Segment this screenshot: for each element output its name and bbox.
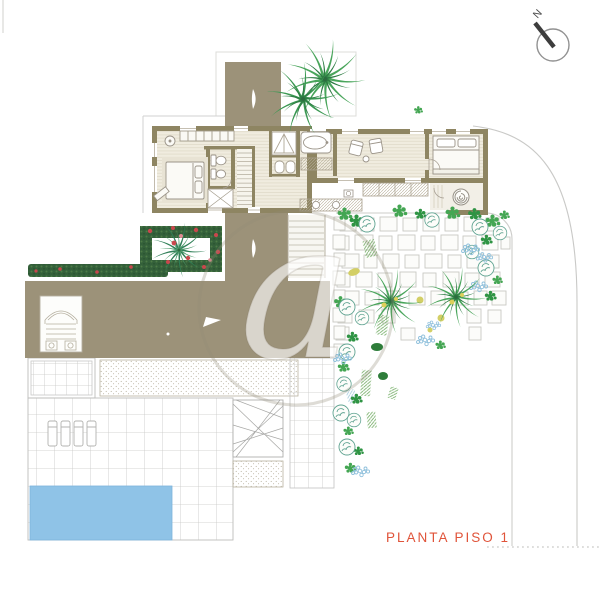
compass-needle bbox=[535, 23, 554, 47]
gravel-square bbox=[233, 461, 283, 487]
north-compass: N bbox=[531, 7, 569, 61]
roof-stair-inset bbox=[40, 296, 82, 352]
spiral-shower bbox=[453, 189, 469, 205]
shower-room bbox=[272, 132, 296, 173]
closet bbox=[208, 189, 233, 208]
swimming-pool bbox=[30, 486, 172, 540]
compass-north-label: N bbox=[531, 7, 545, 21]
watermark-letter: a bbox=[239, 181, 352, 402]
upper-terrace bbox=[430, 183, 488, 215]
plan-title: PLANTA PISO 1 bbox=[386, 530, 510, 545]
bathtub bbox=[301, 132, 332, 170]
flower-hedge bbox=[28, 223, 222, 278]
floor-plan-image: a N PLANTA PISO 1 bbox=[0, 0, 602, 591]
pergola bbox=[233, 400, 283, 457]
small-tile-terrace bbox=[28, 358, 95, 398]
